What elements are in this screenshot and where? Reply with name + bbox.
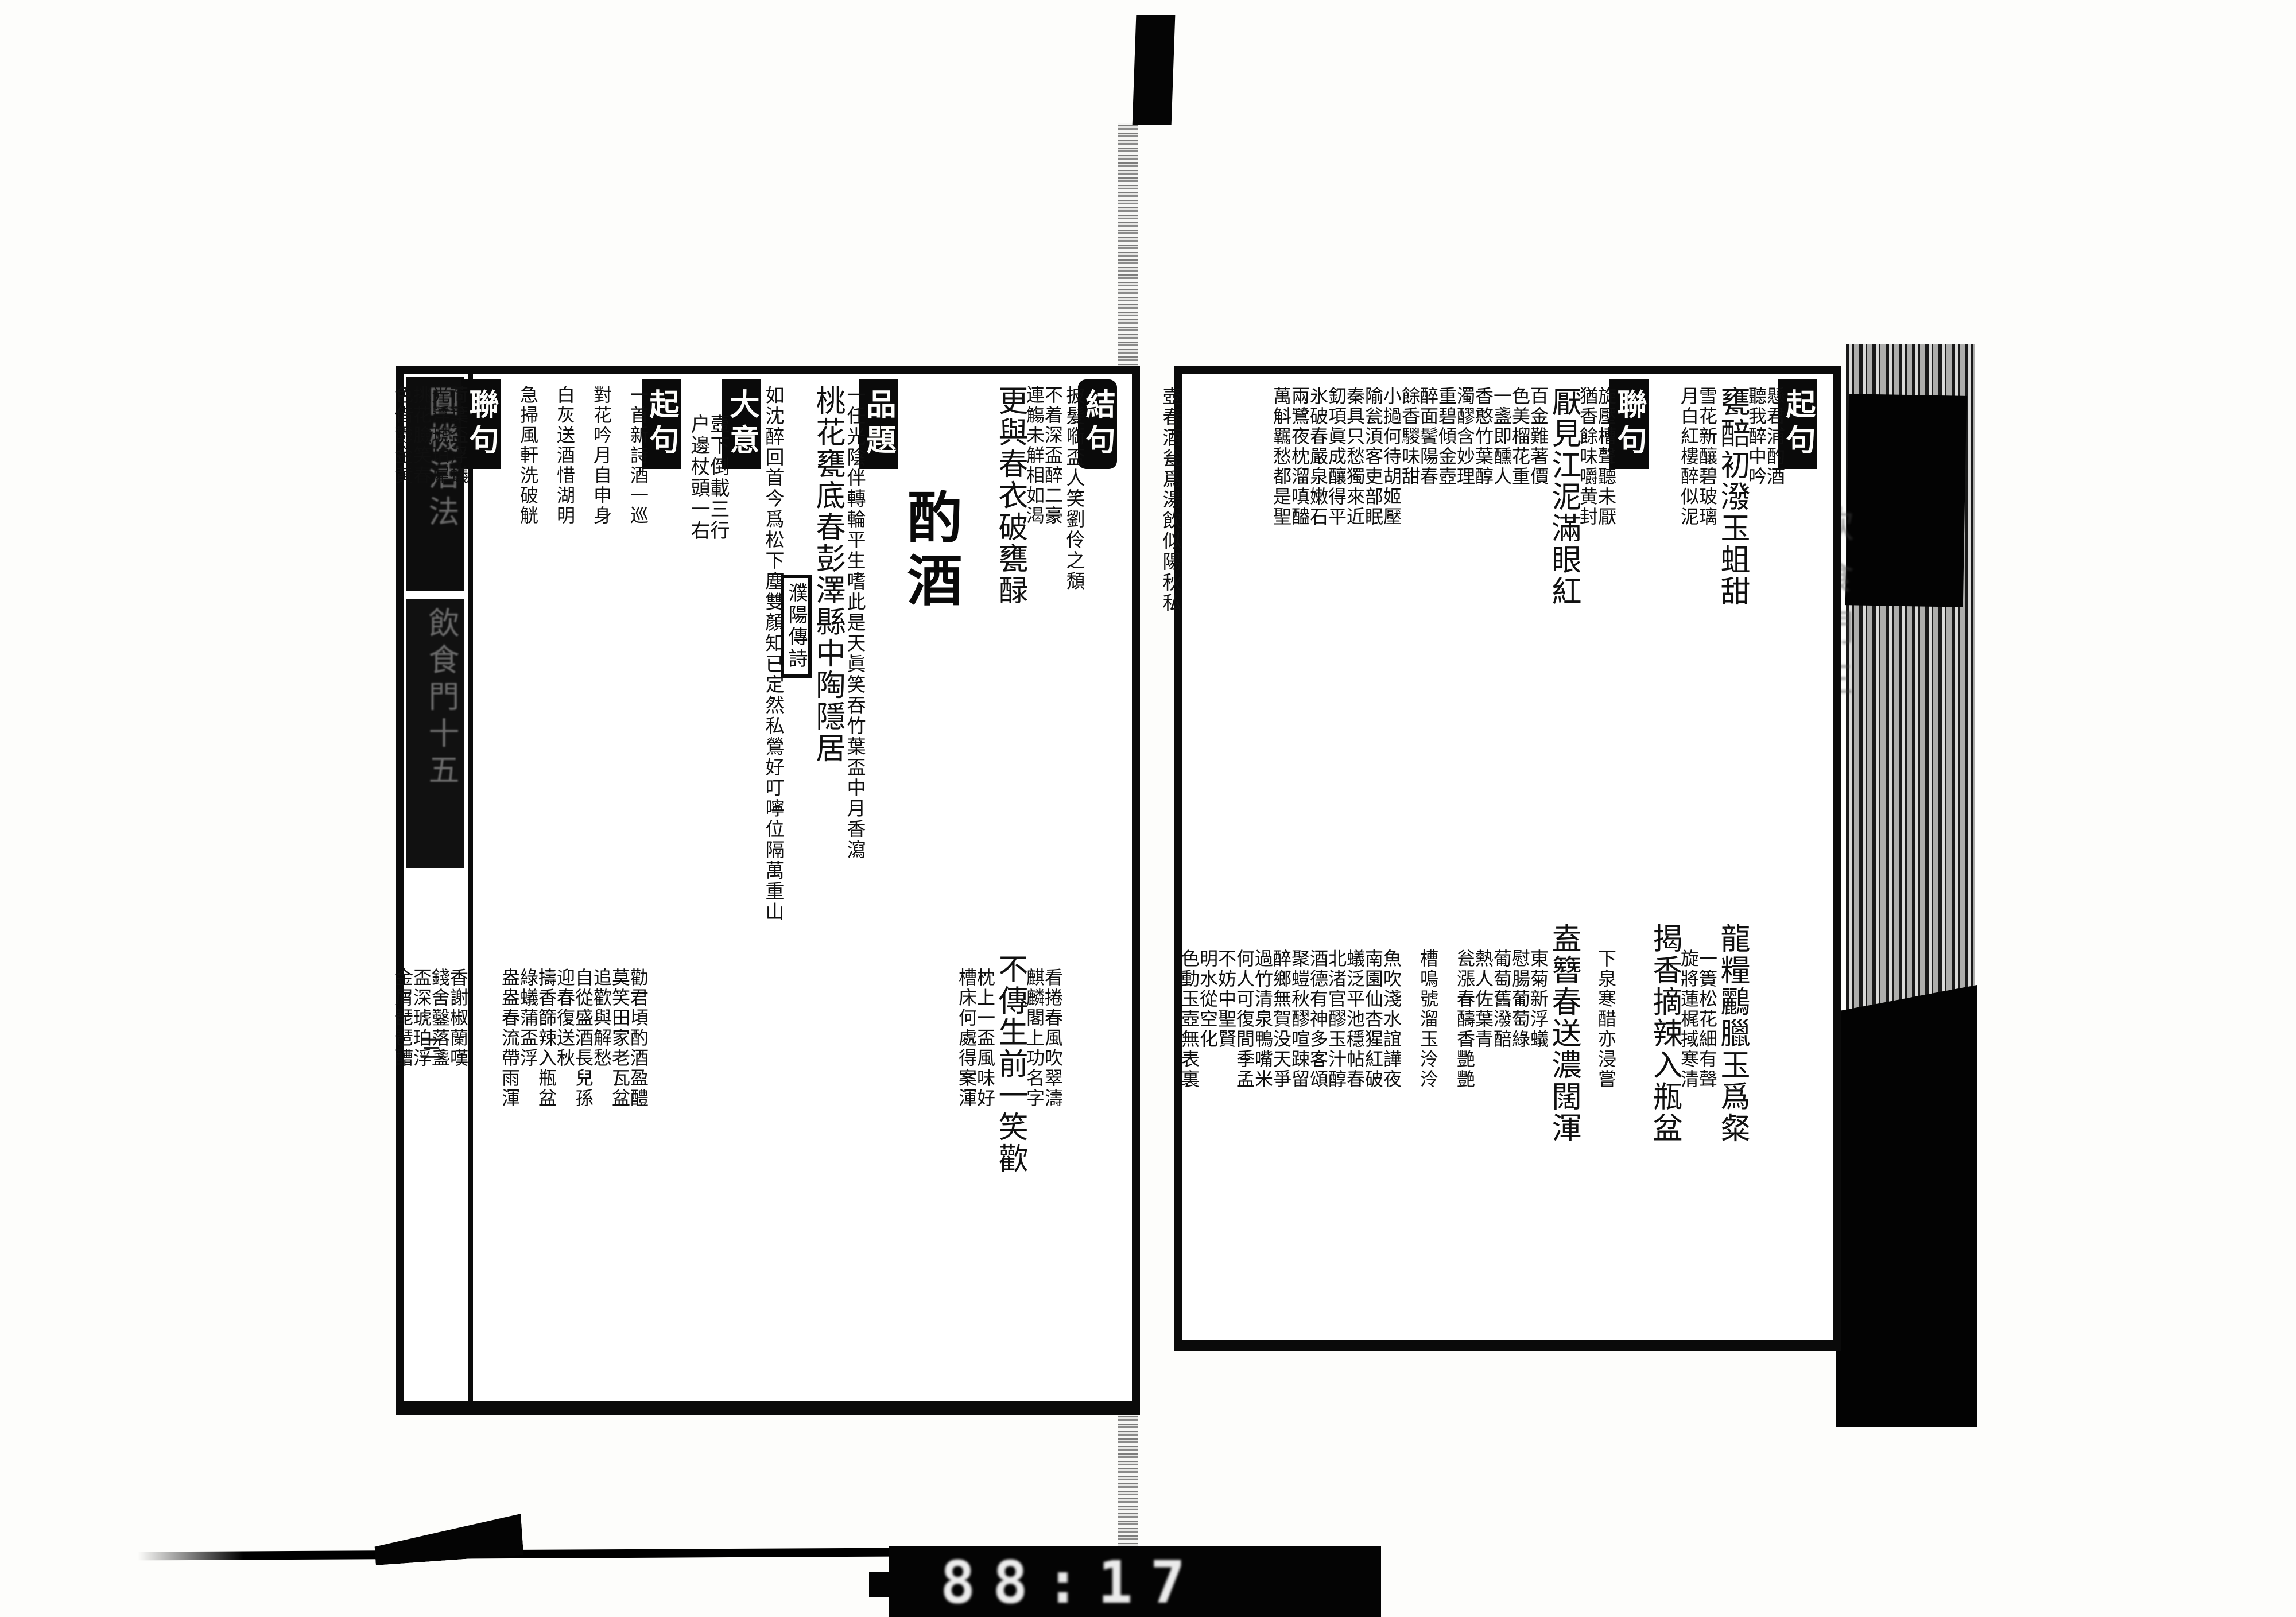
verse-column: 披髮㗸盃人笑劉伶之頹	[1065, 385, 1084, 592]
scanned-book-spread: 飲食門三 圓機活法 飲食門十五 三 結句披髮㗸盃人笑劉伶之頹不着深盃醉二豪 看捲…	[0, 0, 2296, 1617]
verse-column: 桃花甕底春彭澤縣中陶隱居	[813, 385, 843, 764]
verse-column: 白灰送酒惜湖明 迎春復送秋 擣香篩辣入瓶盆	[537, 385, 574, 1108]
verse-column: 厭見江泥滿眼紅 盍簪春送濃闊渾	[1549, 386, 1578, 1144]
microfilm-top-tab	[1133, 15, 1176, 125]
verse-column: 荷葉盃浮蟻 香謝椒蘭嘆 光浮琥珀犀 錢舍鑿落盞	[430, 385, 467, 1068]
counter-bar: 88:17	[889, 1546, 1381, 1617]
verse-column: 醉面鬢陽春 槽鳴號溜玉泠泠 餘香騣味甜	[1401, 386, 1437, 1089]
verse-column: 一首新詩酒一巡 勸君頃酌酒盈醴 莫笑田家老瓦盆	[611, 385, 647, 1108]
verse-column: 急掃風軒洗破觥 綠蟻蒲盃浮 盎盎春流帶雨渾	[501, 385, 537, 1108]
right-page-content: 起句懸君浦酌酒 聽我醉中吟甕醅初潑玉蛆甜 龍糧鸝臘玉爲粲雪花新釀碧玻璃 一簣松花…	[1188, 379, 1825, 1335]
verse-column: 雪花新釀碧玻璃 一簣松花細有聲 月白紅樓醉似泥 旋將蓮梶掝寒清	[1680, 386, 1716, 1089]
verse-column: 一盞即醺人 葡萄舊潑醅 香憨竹葉醇 熱人佐葉青	[1474, 386, 1511, 1049]
verse-column: 揭香摘辣入瓶盆	[1650, 386, 1680, 1144]
page-edge-ink-blob-top	[1845, 394, 1967, 607]
left-page: 圓機活法 飲食門十五 三 結句披髮㗸盃人笑劉伶之頹不着深盃醉二豪 看捲春風吹翠濤…	[396, 366, 1140, 1415]
verse-column: 對花吟月自申身 追歡與解愁 自從盛酒長兒孫	[574, 385, 611, 1108]
verse-column: 一任光陰伴轉輪平生嗜此是天眞笑吞竹葉盃中月香瀉	[846, 385, 864, 860]
spine-divider-rule	[468, 374, 473, 1401]
verse-column: 百金難著價 東菊新浮蟻 色美榴花重 慰腸葡萄綠	[1511, 386, 1548, 1049]
page-edge-ink-blob-bottom	[1836, 985, 1977, 1427]
counter-digits: 88:17	[940, 1549, 1203, 1617]
counter-bar-notch	[869, 1572, 890, 1597]
topic-title: 酌酒	[902, 488, 957, 615]
verse-column: 何人可復間季孟 不妨中聖賢	[1217, 386, 1254, 1089]
verse-column: 明水從空化 色動玉壺無表裏	[1180, 386, 1217, 1089]
verse-column: 甕醅初潑玉蛆甜 龍糧鸝臘玉爲粲	[1717, 386, 1747, 1144]
left-page-content: 結句披髮㗸盃人笑劉伶之頹不着深盃醉二豪 看捲春風吹翠濤 連觴未觧相如渴 麒麟閣上…	[476, 379, 1126, 1395]
verse-column: 秦具只愁獨來近 蟻泛平池穩帖春 釖項眞成釀得平 北渚官醪玉汁醇	[1327, 386, 1364, 1089]
annotation-notes: 壼下倒載三行 户邊杖頭一右	[689, 414, 728, 541]
verse-column: 更與春衣破甕醁 不傳生前一笑歡	[995, 385, 1025, 1174]
verse-column: 濁醪含妙理 瓮漲春醻香艷艷 重碧傾金壺	[1437, 386, 1474, 1089]
verse-column: 如沈醉回首今爲松下塵雙顏知已定然私鶯好叮嚀位隔萬重山	[764, 385, 783, 922]
right-page: 起句懸君浦酌酒 聽我醉中吟甕醅初潑玉蛆甜 龍糧鸝臘玉爲粲雪花新釀碧玻璃 一簣松花…	[1174, 366, 1841, 1351]
verse-column: 懸君浦酌酒 聽我醉中吟	[1747, 386, 1784, 487]
verse-column: 小撾何待胡姬壓 魚吹淺水誼譁夜 隃瓮湏客吏部眠 南園仙杏猩紅破	[1364, 386, 1401, 1089]
verse-column: 挑花臉笑春 盃深琥珀浮 色借鬱金黄 金屑琵琶醩	[394, 385, 430, 1068]
verse-column: 旋壓槽聲聽未厭 下泉寒醋亦浸嘗 猶香餘味嚼黄封	[1578, 386, 1615, 1089]
verse-column: 壺春酒瓮爲湯飲似陽秋私	[1161, 386, 1180, 614]
verse-column: 枕上一盃風味好 槽床何處得案渾	[957, 385, 994, 1108]
citation-cartouche: 濮陽傳詩	[781, 575, 812, 678]
verse-column: 萬斛羈愁都是聖 醉鄉無賀没天爭 過竹清泉鴨嘴米	[1254, 386, 1290, 1089]
verse-column: 不着深盃醉二豪 看捲春風吹翠濤 連觴未觧相如渴 麒麟閣上功名字	[1025, 385, 1062, 1108]
verse-column: 氷破春嚴泉嫩石 酒德有神多客頌 兩鷺夜枕溜嗔醠 聚螘秋醪喧踈留	[1290, 386, 1327, 1089]
